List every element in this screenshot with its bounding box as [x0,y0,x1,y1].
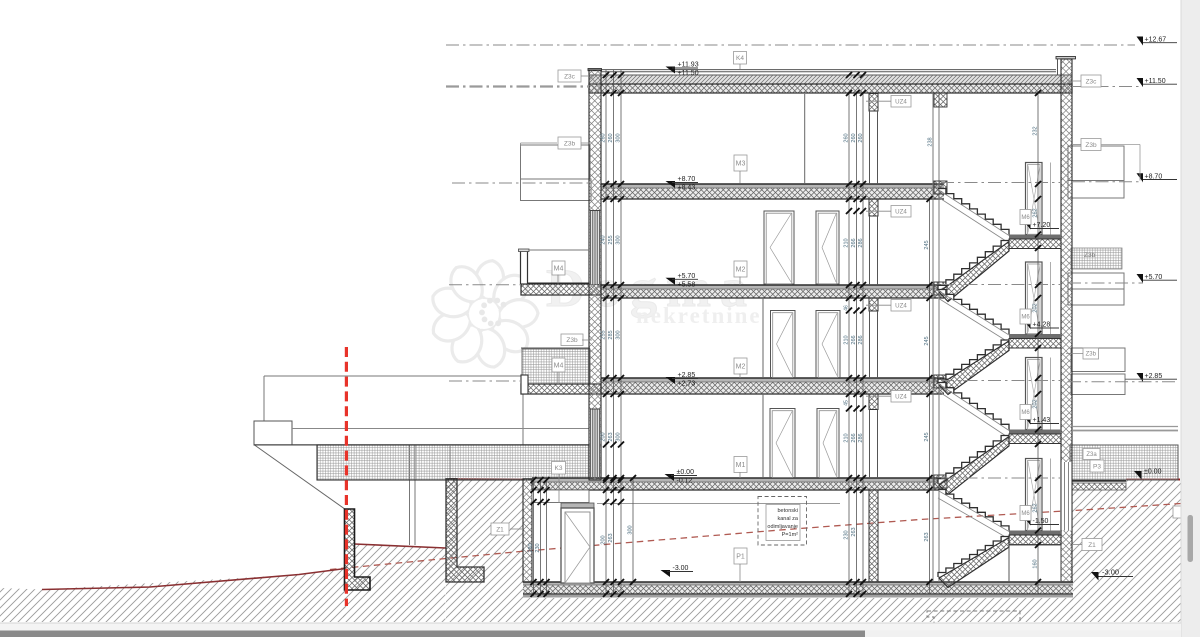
svg-text:M4: M4 [554,363,564,370]
svg-text:262: 262 [1033,503,1039,512]
svg-text:202: 202 [1033,399,1039,408]
svg-text:286: 286 [858,238,864,247]
svg-text:300: 300 [628,525,634,534]
svg-text:240: 240 [601,235,607,244]
svg-text:P=1m²: P=1m² [782,532,799,538]
svg-text:263: 263 [851,527,857,536]
svg-text:210: 210 [844,238,850,247]
svg-text:+5.70: +5.70 [1145,274,1163,281]
svg-text:P1: P1 [736,554,745,561]
svg-text:46: 46 [844,305,850,311]
svg-text:255: 255 [601,330,607,339]
svg-text:M3: M3 [736,161,746,168]
svg-text:210: 210 [844,433,850,442]
svg-text:+2.85: +2.85 [678,372,696,379]
svg-text:M6: M6 [1021,410,1030,416]
svg-text:+11.93: +11.93 [678,62,699,69]
svg-text:±0.00: ±0.00 [677,469,695,476]
svg-text:200: 200 [601,535,607,544]
svg-text:M1: M1 [736,462,746,469]
svg-text:202: 202 [1033,303,1039,312]
svg-text:+8.43: +8.43 [678,185,696,192]
svg-text:266: 266 [851,433,857,442]
svg-text:kanal za: kanal za [778,516,799,522]
svg-text:-1.50: -1.50 [1033,518,1049,525]
svg-text:300: 300 [616,432,622,441]
svg-text:UZ4: UZ4 [895,302,907,309]
svg-text:245: 245 [924,336,930,345]
svg-text:300: 300 [616,133,622,142]
svg-text:M6: M6 [1021,511,1030,517]
svg-text:263: 263 [924,532,930,541]
svg-text:260: 260 [858,133,864,142]
svg-text:M2: M2 [736,267,746,274]
svg-text:K4: K4 [736,55,744,62]
svg-text:160: 160 [1033,559,1039,568]
svg-text:255: 255 [608,235,614,244]
svg-text:286: 286 [858,433,864,442]
svg-text:+11.50: +11.50 [1145,78,1166,85]
svg-text:Z3c: Z3c [564,73,576,80]
svg-text:260: 260 [608,133,614,142]
svg-text:Z3c: Z3c [1086,78,1098,85]
svg-text:+8.70: +8.70 [678,176,696,183]
svg-text:+2.73: +2.73 [678,381,696,388]
svg-text:+2.85: +2.85 [1145,373,1163,380]
svg-text:285: 285 [608,330,614,339]
svg-text:263: 263 [608,533,614,542]
svg-text:Z3b: Z3b [566,337,578,344]
svg-text:M6: M6 [1021,315,1030,321]
svg-text:245: 245 [924,240,930,249]
svg-text:238: 238 [928,137,934,146]
svg-text:UZ4: UZ4 [895,98,907,105]
svg-text:286: 286 [858,335,864,344]
svg-text:263: 263 [608,432,614,441]
svg-text:+12.67: +12.67 [1145,37,1167,44]
svg-text:200: 200 [601,432,607,441]
svg-text:300: 300 [616,330,622,339]
svg-text:Z3b: Z3b [564,140,576,147]
svg-text:300: 300 [616,235,622,244]
svg-text:odimljavanje: odimljavanje [767,524,798,530]
svg-text:230: 230 [528,543,534,552]
svg-text:Z1: Z1 [1088,542,1096,549]
svg-text:266: 266 [851,335,857,344]
svg-text:232: 232 [1033,126,1039,135]
svg-text:+8.70: +8.70 [1145,173,1163,180]
svg-text:Z3a: Z3a [1086,452,1097,458]
svg-text:+1.43: +1.43 [1033,417,1051,424]
svg-text:260: 260 [851,133,857,142]
svg-text:230: 230 [535,543,541,552]
svg-text:Z1: Z1 [496,526,504,533]
svg-text:nekretnine: nekretnine [636,303,762,328]
svg-text:262: 262 [1033,208,1039,217]
svg-text:+7.20: +7.20 [1033,222,1051,229]
svg-text:Z3b: Z3b [1085,142,1097,149]
svg-text:M6: M6 [1021,215,1030,221]
svg-text:Z3b: Z3b [1086,352,1097,358]
svg-text:-3.00: -3.00 [1102,568,1119,577]
svg-text:45: 45 [844,400,850,406]
svg-text:Z3b: Z3b [1084,252,1096,259]
svg-text:P3: P3 [1093,463,1101,470]
svg-text:-3.00: -3.00 [673,565,689,572]
svg-text:210: 210 [844,335,850,344]
svg-text:M2: M2 [736,364,746,371]
svg-text:-0.12: -0.12 [677,478,693,485]
svg-text:245: 245 [924,432,930,441]
svg-text:260: 260 [844,133,850,142]
svg-text:betonski: betonski [778,508,799,514]
svg-text:UZ4: UZ4 [895,393,907,400]
svg-text:+5.70: +5.70 [678,273,696,280]
svg-text:230: 230 [844,530,850,539]
svg-text:+5.58: +5.58 [678,281,696,288]
svg-text:260: 260 [601,133,607,142]
svg-text:M4: M4 [554,266,564,273]
svg-text:+11.50: +11.50 [678,70,699,77]
svg-text:K3: K3 [555,465,563,472]
svg-text:UZ4: UZ4 [895,208,907,215]
svg-text:±0.00: ±0.00 [1144,469,1162,476]
svg-text:+4.28: +4.28 [1033,322,1051,329]
svg-text:266: 266 [851,238,857,247]
